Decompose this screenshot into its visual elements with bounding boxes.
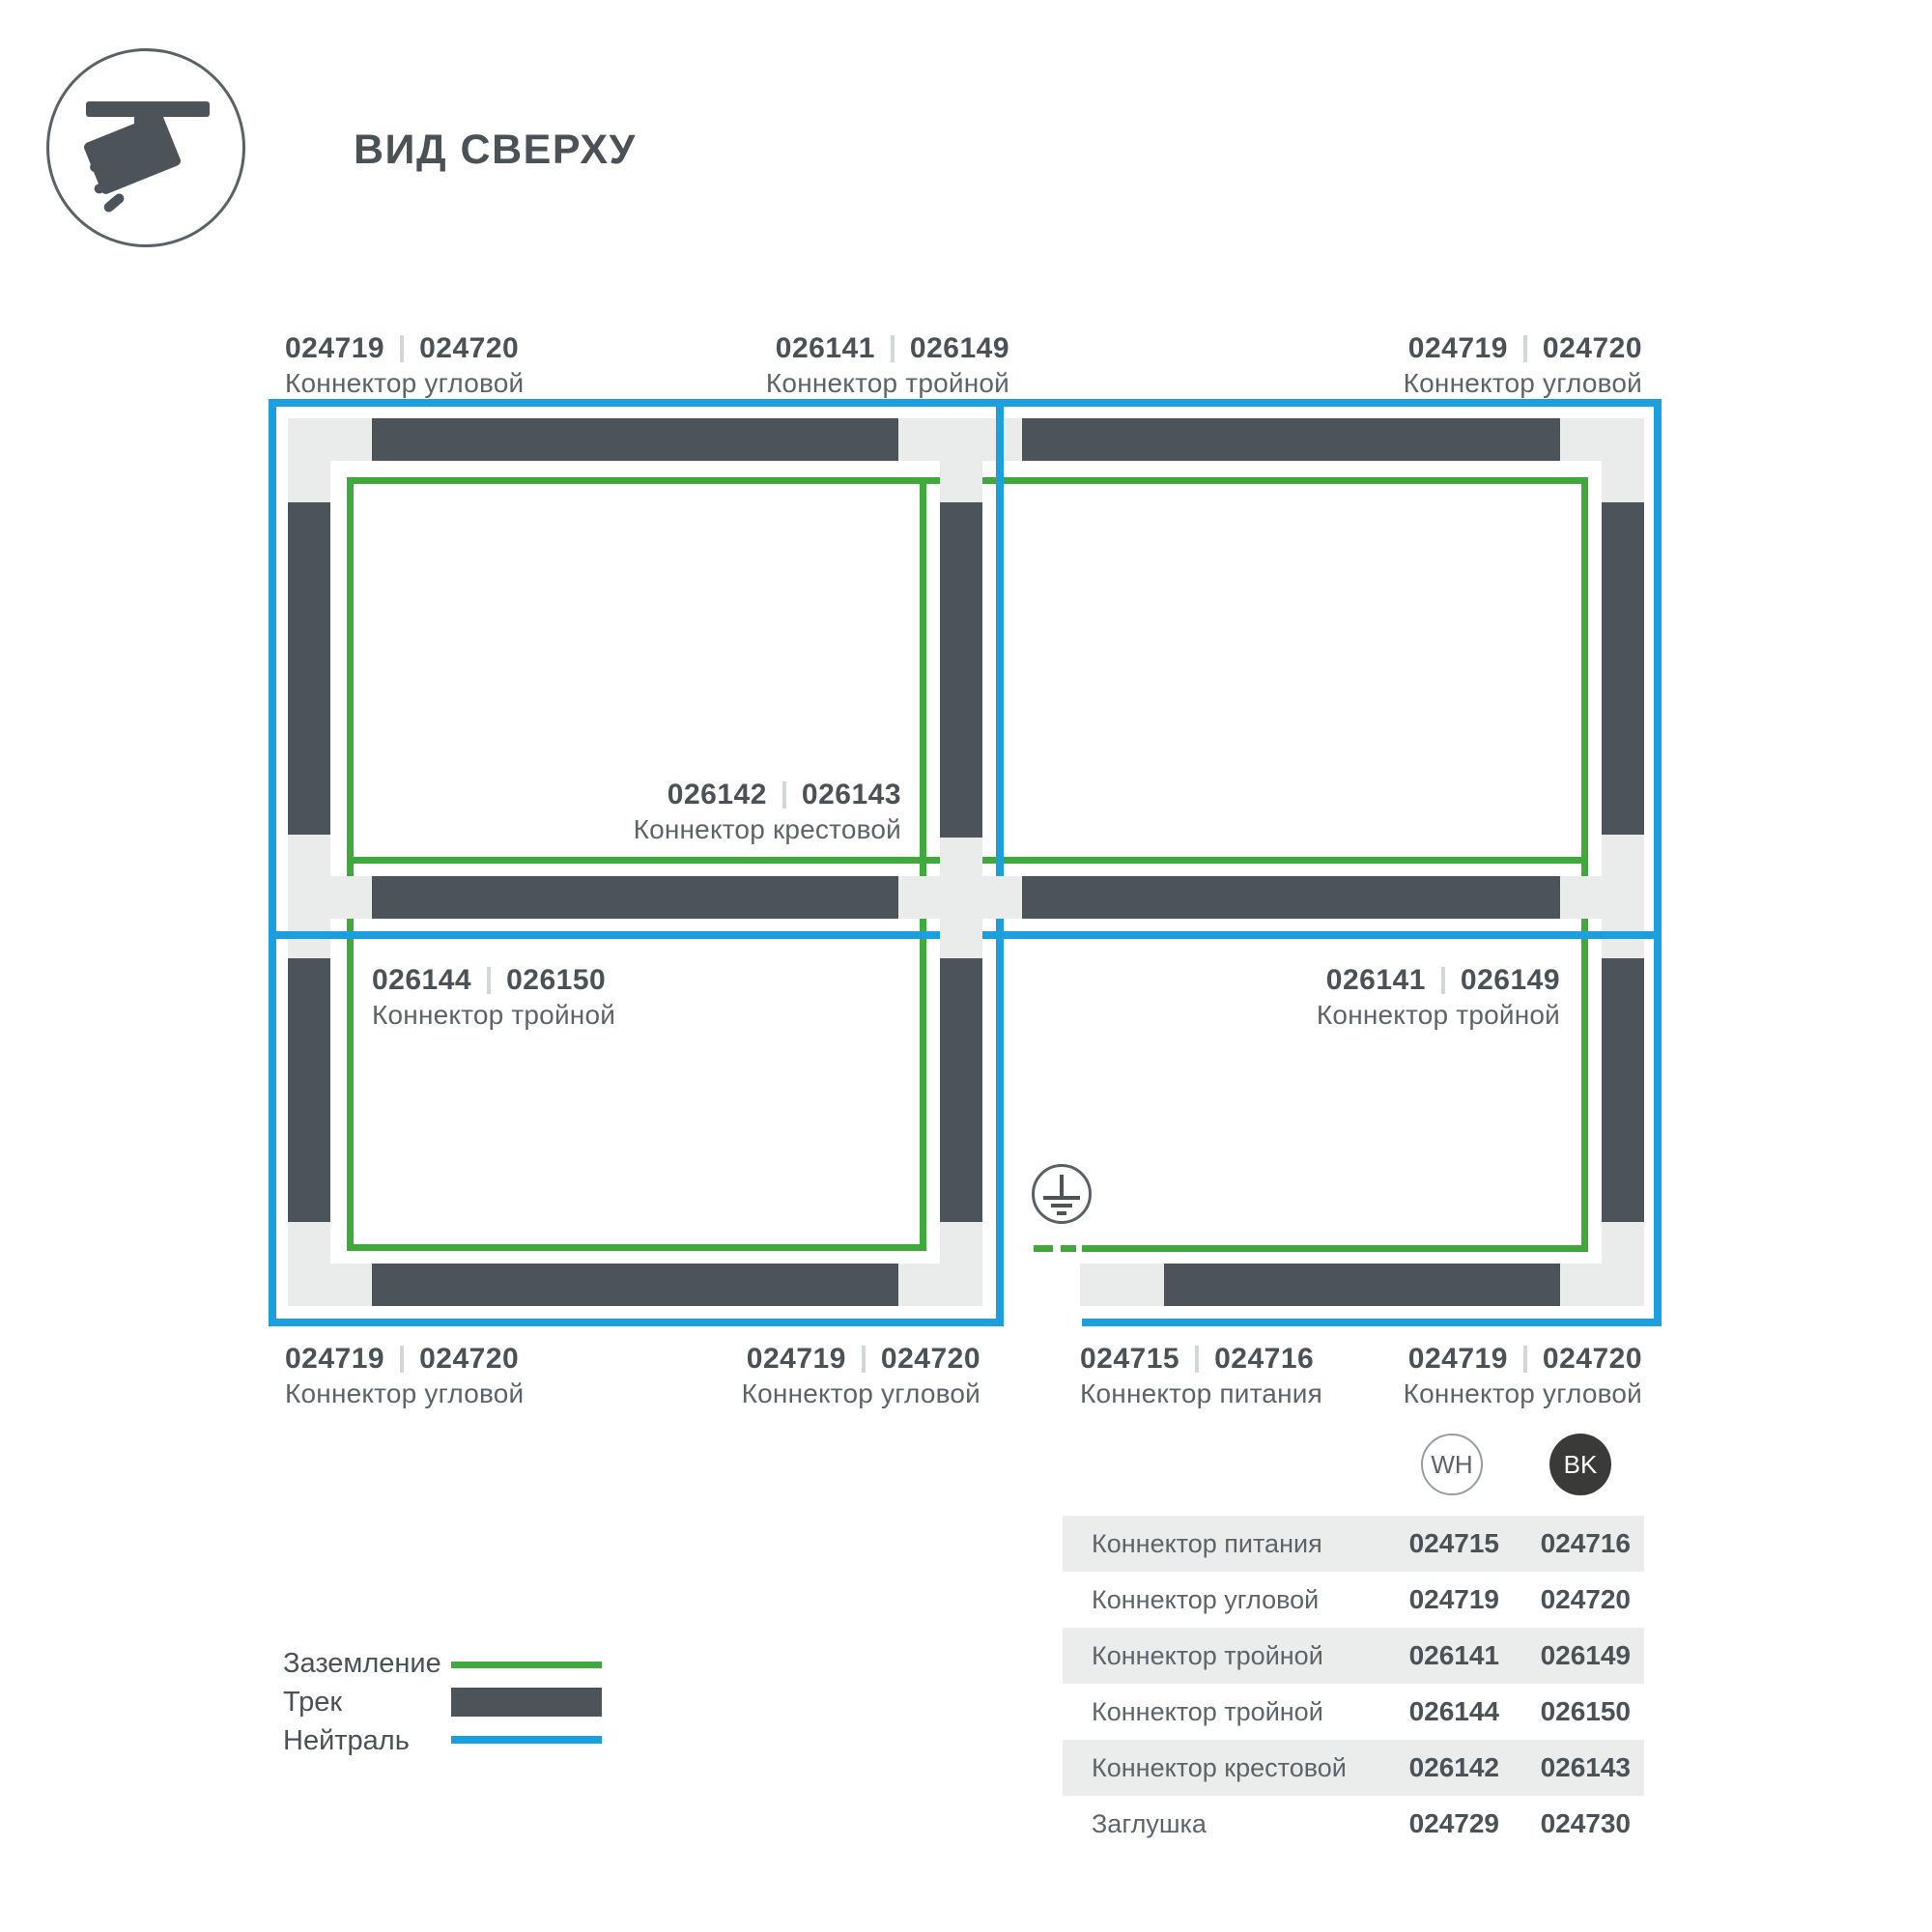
connector-block [330, 876, 372, 919]
table-row: Заглушка 024729 024730 [1063, 1796, 1644, 1852]
ground-line-segment [1061, 1245, 1076, 1252]
label-corner-top-right: 024719024720 Коннектор угловой [1404, 332, 1642, 398]
divider [1523, 1346, 1527, 1373]
article-numbers: 024719024720 [1404, 1343, 1642, 1376]
label-tee-mid-left: 026144026150 Коннектор тройной [372, 964, 615, 1030]
legend-track-swatch [451, 1688, 602, 1717]
part-bk-code: 024730 [1499, 1808, 1631, 1839]
neutral-line-segment [276, 931, 940, 939]
part-bk-code: 026143 [1499, 1752, 1631, 1783]
part-name: Коннектор тройной [1092, 1697, 1374, 1727]
track-segment [940, 502, 982, 838]
connector-block [288, 835, 330, 958]
connector-name: Коннектор угловой [1404, 368, 1642, 398]
connector-block [940, 461, 982, 502]
track-segment [1602, 502, 1644, 835]
connector-name: Коннектор угловой [285, 368, 524, 398]
connector-block [940, 1222, 982, 1306]
light-ray-glyph [102, 191, 127, 213]
article-numbers: 024719024720 [742, 1343, 980, 1376]
part-wh-code: 024715 [1374, 1528, 1499, 1559]
ground-line-segment [1082, 1245, 1584, 1252]
divider [487, 967, 491, 994]
connector-name: Коннектор питания [1080, 1378, 1322, 1408]
black-variant-badge: BK [1549, 1434, 1611, 1495]
ground-line-segment [350, 477, 940, 484]
track-segment [372, 1264, 898, 1306]
neutral-line-segment [1654, 399, 1662, 1326]
part-name: Коннектор питания [1092, 1529, 1374, 1559]
part-name: Коннектор крестовой [1092, 1753, 1374, 1783]
ground-line-segment [350, 1244, 926, 1251]
ground-line-segment [982, 477, 1584, 484]
label-corner-bottom-left: 024719024720 Коннектор угловой [285, 1343, 524, 1408]
ground-line-segment [982, 857, 1584, 864]
ground-line-segment [1581, 919, 1588, 1252]
neutral-line-segment [996, 919, 1004, 1326]
article-numbers: 026144026150 [372, 964, 615, 997]
ground-line-segment [1581, 477, 1588, 876]
part-wh-code: 026144 [1374, 1696, 1499, 1727]
connector-name: Коннектор угловой [742, 1378, 980, 1408]
neutral-line-segment [269, 1319, 1004, 1326]
part-wh-code: 024719 [1374, 1584, 1499, 1615]
divider [782, 781, 786, 809]
table-row: Коннектор угловой 024719 024720 [1063, 1572, 1644, 1628]
label-corner-bottom-right: 024719024720 Коннектор угловой [1404, 1343, 1642, 1408]
legend-ground-label: Заземление [283, 1648, 441, 1680]
connector-block [1560, 876, 1602, 919]
track-segment [1602, 958, 1644, 1222]
track-segment [1164, 1264, 1560, 1306]
track-segment [288, 958, 330, 1222]
track-bar-glyph [86, 101, 210, 117]
article-numbers: 024719024720 [1404, 332, 1642, 365]
part-bk-code: 026149 [1499, 1640, 1631, 1671]
divider [1195, 1346, 1199, 1373]
connector-name: Коннектор крестовой [634, 814, 901, 844]
article-numbers: 024719024720 [285, 1343, 524, 1376]
neutral-line-segment [996, 407, 1004, 876]
page-title: ВИД СВЕРХУ [354, 127, 637, 174]
neutral-line-segment [1082, 1319, 1662, 1326]
connector-name: Коннектор тройной [766, 368, 1009, 398]
label-cross-center: 026142026143 Коннектор крестовой [634, 779, 901, 844]
divider [862, 1346, 866, 1373]
label-corner-top-left: 024719024720 Коннектор угловой [285, 332, 524, 398]
legend-track-label: Трек [283, 1687, 342, 1719]
ground-line-segment [347, 477, 354, 876]
part-bk-code: 026150 [1499, 1696, 1631, 1727]
connector-block [1602, 835, 1644, 958]
legend-ground-swatch [451, 1662, 602, 1668]
connector-name: Коннектор угловой [1404, 1378, 1642, 1408]
connector-name: Коннектор угловой [285, 1378, 524, 1408]
article-numbers: 026141026149 [766, 332, 1009, 365]
neutral-line-segment [982, 931, 1654, 939]
article-numbers: 024719024720 [285, 332, 524, 365]
divider [400, 335, 404, 362]
divider [1441, 967, 1445, 994]
divider [400, 1346, 404, 1373]
label-tee-mid-right: 026141026149 Коннектор тройной [1317, 964, 1560, 1030]
connector-block [288, 1222, 330, 1306]
track-segment [372, 876, 898, 919]
neutral-line-segment [269, 399, 1662, 407]
white-variant-badge: WH [1421, 1434, 1483, 1495]
part-name: Коннектор угловой [1092, 1585, 1374, 1615]
track-spotlight-icon [46, 48, 245, 247]
connector-block [1602, 1222, 1644, 1306]
connector-block [1602, 418, 1644, 502]
article-numbers: 024715024716 [1080, 1343, 1322, 1376]
legend-neutral-swatch [451, 1736, 602, 1744]
divider [891, 335, 895, 362]
connector-block [288, 418, 330, 502]
track-segment [372, 418, 898, 461]
article-numbers: 026142026143 [634, 779, 901, 811]
connector-name: Коннектор тройной [372, 1000, 615, 1030]
ground-line-segment [347, 919, 354, 1251]
part-bk-code: 024720 [1499, 1584, 1631, 1615]
table-row: Коннектор питания 024715 024716 [1063, 1516, 1644, 1572]
divider [1523, 335, 1527, 362]
track-segment [1022, 876, 1560, 919]
part-wh-code: 026142 [1374, 1752, 1499, 1783]
table-row: Коннектор тройной 026144 026150 [1063, 1684, 1644, 1740]
label-corner-bottom-center: 024719024720 Коннектор угловой [742, 1343, 980, 1408]
part-wh-code: 026141 [1374, 1640, 1499, 1671]
table-row: Коннектор крестовой 026142 026143 [1063, 1740, 1644, 1796]
part-bk-code: 024716 [1499, 1528, 1631, 1559]
part-wh-code: 024729 [1374, 1808, 1499, 1839]
track-segment [940, 958, 982, 1222]
earth-ground-icon [1032, 1164, 1092, 1224]
ground-line-segment [350, 857, 940, 864]
track-segment [1022, 418, 1560, 461]
connector-name: Коннектор тройной [1317, 1000, 1560, 1030]
catalog-scheme-page: ВИД СВЕРХУ 024719024720 Коннектор углово… [0, 0, 1932, 1932]
ground-line-segment [1034, 1245, 1053, 1252]
part-name: Коннектор тройной [1092, 1641, 1374, 1671]
connector-block [1080, 1264, 1164, 1306]
ground-line-segment [920, 919, 926, 1251]
part-name: Заглушка [1092, 1809, 1374, 1839]
track-segment [288, 502, 330, 835]
legend-neutral-label: Нейтраль [283, 1725, 410, 1757]
neutral-line-segment [269, 399, 276, 1326]
label-tee-top-center: 026141026149 Коннектор тройной [766, 332, 1009, 398]
article-numbers: 026141026149 [1317, 964, 1560, 997]
table-row: Коннектор тройной 026141 026149 [1063, 1628, 1644, 1684]
ground-line-segment [920, 477, 926, 876]
connector-block [940, 838, 982, 958]
label-power-connector: 024715024716 Коннектор питания [1080, 1343, 1322, 1408]
